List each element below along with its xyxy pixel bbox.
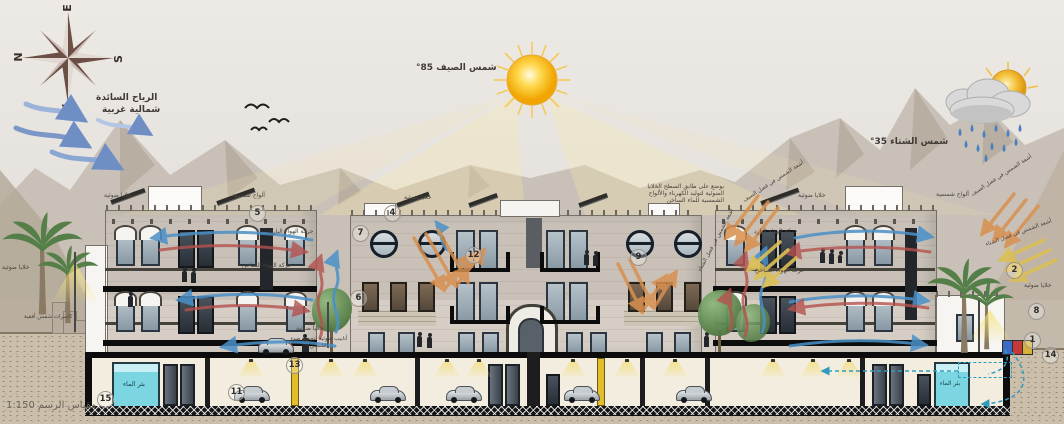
label-pv-cells: خلايا ضوئية bbox=[798, 192, 826, 199]
person bbox=[704, 336, 709, 347]
label-cold-air: حركة الهواء البارد bbox=[270, 228, 313, 235]
window bbox=[760, 230, 777, 268]
summer-sun-icon bbox=[492, 40, 572, 120]
person bbox=[584, 254, 589, 265]
label-solar-panels: ألواح شمسية bbox=[936, 191, 969, 198]
balcony-slab bbox=[713, 286, 937, 292]
label-cold-air: حركة الهواء البارد bbox=[754, 228, 797, 235]
architectural-section-diagram: E N S W bbox=[0, 0, 1064, 424]
person bbox=[417, 336, 422, 347]
label-pv-cells: خلايا ضوئية bbox=[1024, 282, 1052, 289]
marker-7: 7 bbox=[352, 225, 369, 242]
marker-4: 4 bbox=[384, 205, 401, 222]
mashrabiya-window bbox=[628, 282, 645, 312]
brick-sill bbox=[624, 310, 698, 326]
wind-label: شمالية غربية bbox=[102, 106, 160, 114]
label-sun-breakers: كاسرات شمس أفقية bbox=[24, 314, 73, 321]
winter-sun-label: شمس الشتاء 35° bbox=[870, 138, 948, 146]
pillar bbox=[860, 358, 865, 406]
elevator bbox=[488, 364, 503, 406]
label-water-well: بئر الماء bbox=[934, 380, 966, 388]
balcony bbox=[450, 306, 510, 324]
person bbox=[593, 255, 598, 266]
pillar bbox=[415, 358, 420, 406]
elevator bbox=[505, 364, 520, 406]
window bbox=[779, 230, 796, 268]
window bbox=[197, 296, 214, 334]
elevator bbox=[872, 364, 887, 406]
window bbox=[398, 332, 415, 354]
window bbox=[874, 234, 893, 266]
marker-12: 12 bbox=[465, 247, 482, 264]
annex-rail bbox=[936, 291, 1002, 297]
vent-row bbox=[722, 219, 928, 224]
pillar bbox=[205, 358, 210, 406]
person bbox=[427, 337, 432, 348]
marker-6: 6 bbox=[350, 290, 367, 307]
rain-drops bbox=[959, 124, 1022, 162]
label-pv-cells: خلايا ضوئية bbox=[404, 194, 432, 201]
pillar bbox=[640, 358, 645, 406]
window bbox=[238, 300, 257, 332]
window bbox=[846, 300, 865, 332]
window bbox=[674, 332, 691, 354]
stair-shaft bbox=[905, 228, 917, 320]
balcony bbox=[540, 306, 600, 324]
window bbox=[646, 332, 663, 354]
winter-weather-icon bbox=[930, 58, 1050, 168]
compass-s: S bbox=[112, 55, 125, 63]
parapet bbox=[106, 205, 314, 211]
window bbox=[846, 234, 865, 266]
pillar bbox=[527, 352, 540, 406]
round-window bbox=[370, 230, 398, 258]
label-hot-air: حركة الهواء الساخن bbox=[242, 262, 292, 269]
stair-shaft bbox=[260, 228, 273, 290]
elevator bbox=[163, 364, 178, 406]
marker-2: 2 bbox=[1006, 262, 1023, 279]
parked-car bbox=[370, 390, 406, 401]
mashrabiya-window bbox=[390, 282, 407, 312]
marker-1: 1 bbox=[1024, 332, 1041, 349]
entrance-pediment bbox=[500, 200, 560, 217]
street-light bbox=[74, 252, 76, 332]
window bbox=[726, 234, 745, 266]
window bbox=[178, 296, 195, 334]
parked-car bbox=[446, 390, 482, 401]
floor-slab bbox=[715, 268, 935, 271]
basement-door bbox=[546, 374, 560, 406]
window bbox=[178, 230, 195, 268]
street-light bbox=[978, 300, 980, 352]
label-pv-cells: خلايا ضوئية bbox=[104, 192, 132, 199]
label-solar-panels: ألواح شمسية bbox=[232, 192, 265, 199]
person bbox=[191, 272, 196, 283]
label-light-tubes: أنابيب ضوئية لتجميع ضوء الشمس bbox=[288, 336, 350, 349]
vent-row bbox=[112, 219, 308, 224]
person bbox=[820, 252, 825, 263]
compass-w: W bbox=[60, 104, 73, 116]
bird-flock bbox=[243, 100, 313, 140]
round-window bbox=[418, 230, 446, 258]
compass-e: E bbox=[61, 4, 74, 12]
elevator bbox=[180, 364, 195, 406]
window bbox=[590, 332, 607, 354]
greywater-collection-zone bbox=[958, 362, 1012, 378]
window bbox=[197, 230, 214, 268]
label-roof-note: يوضع على طابق السطح الخلايا الضوئية لتول… bbox=[628, 183, 724, 204]
basement-door bbox=[917, 374, 931, 406]
marker-13: 13 bbox=[286, 357, 303, 374]
brick-sill bbox=[358, 310, 436, 326]
person bbox=[128, 296, 133, 307]
balcony-slab bbox=[103, 286, 317, 292]
marker-8: 8 bbox=[1028, 303, 1045, 320]
window bbox=[566, 332, 583, 354]
parked-car bbox=[676, 390, 712, 401]
window bbox=[874, 300, 893, 332]
mashrabiya-window bbox=[418, 282, 435, 312]
label-pv-cells: خلايا ضوئية bbox=[296, 325, 324, 332]
label-water-well: بئر الماء bbox=[112, 380, 156, 388]
compass-n: N bbox=[12, 52, 25, 61]
marker-14: 14 bbox=[1042, 347, 1059, 364]
person bbox=[182, 271, 187, 282]
round-window bbox=[674, 230, 702, 258]
mashrabiya-window bbox=[656, 282, 673, 312]
person bbox=[838, 255, 842, 263]
label-pv-cells: خلايا ضوئية bbox=[2, 264, 30, 271]
parapet bbox=[716, 205, 934, 211]
balcony bbox=[540, 252, 600, 272]
scale-label: مقياس الرسم 1:150 bbox=[6, 402, 96, 410]
person bbox=[829, 253, 834, 264]
window bbox=[368, 332, 385, 354]
label-hot-air: حركة الهواء الساخن bbox=[755, 267, 805, 274]
window bbox=[141, 234, 160, 266]
window bbox=[482, 332, 499, 354]
elevator bbox=[889, 364, 904, 406]
parked-car bbox=[564, 390, 600, 401]
window bbox=[116, 234, 135, 266]
window bbox=[779, 296, 796, 334]
marker-11: 11 bbox=[228, 384, 245, 401]
summer-sun-label: شمس الصيف 85° bbox=[416, 64, 497, 72]
marker-9: 9 bbox=[630, 249, 647, 266]
window bbox=[458, 332, 475, 354]
wind-label: الرياح السائدة bbox=[96, 94, 157, 102]
window bbox=[141, 300, 160, 332]
marker-5: 5 bbox=[249, 205, 266, 222]
foundation-hatch bbox=[85, 406, 1010, 415]
marker-15: 15 bbox=[97, 391, 114, 408]
